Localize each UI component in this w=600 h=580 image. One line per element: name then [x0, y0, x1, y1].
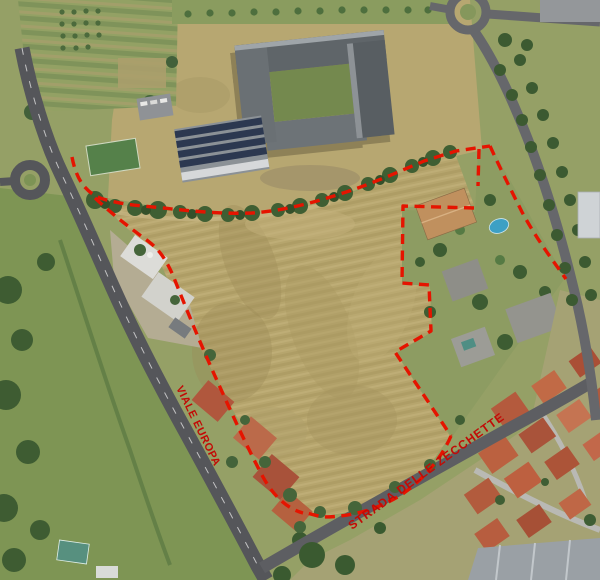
school-courtyard: [269, 64, 354, 122]
aerial-map-canvas: VIALE EUROPA STRADA DELLE ZECCHETTE: [0, 0, 600, 580]
parking-top-right: [540, 0, 600, 22]
white-shed: [96, 566, 118, 578]
white-building-right-edge: [578, 192, 600, 238]
green-shed: [57, 540, 89, 564]
top-tree-row: [172, 0, 452, 24]
aerial-map: VIALE EUROPA STRADA DELLE ZECCHETTE: [0, 0, 600, 580]
